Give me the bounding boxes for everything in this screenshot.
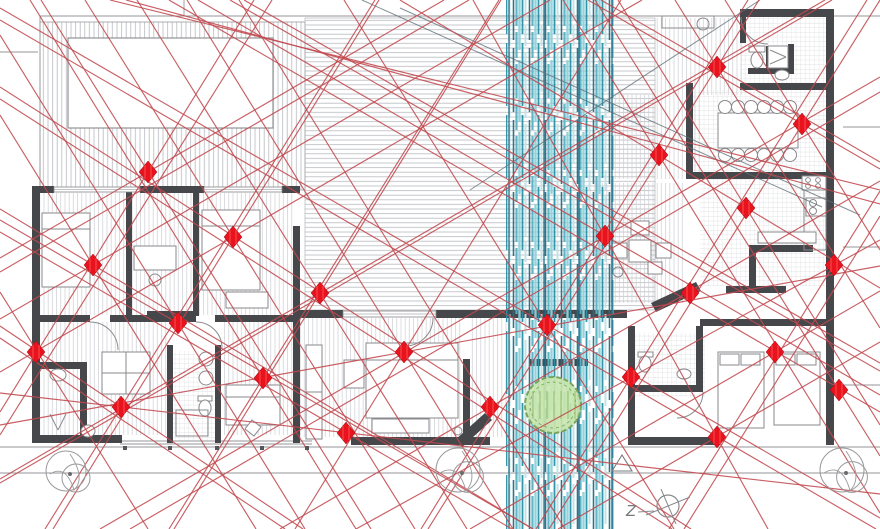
tree-icon xyxy=(820,448,864,492)
pool-skylight xyxy=(68,38,273,128)
wall xyxy=(32,186,40,443)
dresser-room-d xyxy=(226,385,280,425)
fence-post-dot xyxy=(215,446,219,450)
tree-trunk-dot xyxy=(460,471,464,475)
fence-post-dot xyxy=(168,446,172,450)
tree-branch xyxy=(50,454,79,490)
wall xyxy=(686,83,693,179)
wall xyxy=(32,315,90,322)
tree-trunk-dot xyxy=(68,472,72,476)
dining-chair xyxy=(719,101,732,114)
tree-icon xyxy=(46,451,86,491)
chair-sitting xyxy=(612,243,627,258)
toilet-top xyxy=(751,52,763,68)
floor-plan: Z xyxy=(0,0,880,529)
dining-chair xyxy=(745,101,758,114)
pillow xyxy=(720,354,739,365)
fence-post-dot xyxy=(260,446,264,450)
water-band xyxy=(506,0,614,529)
wall xyxy=(788,44,794,74)
north-arrow-tail xyxy=(638,511,654,512)
desk-room2 xyxy=(134,246,176,270)
fence-post-dot xyxy=(123,446,127,450)
toilet-mid xyxy=(199,400,211,416)
wall xyxy=(740,9,834,17)
basin-mid xyxy=(199,371,213,385)
nightstand-master xyxy=(344,360,364,388)
sink-top-bath xyxy=(775,70,789,80)
wall xyxy=(628,437,720,445)
fence-post-dot xyxy=(305,446,309,450)
tree-branch xyxy=(824,451,856,491)
floor-plan-drawing: Z xyxy=(0,0,880,529)
green-tree-layer xyxy=(525,377,581,433)
bench-master xyxy=(372,419,429,433)
wall xyxy=(696,326,703,392)
tree-trunk-dot xyxy=(844,471,848,475)
wall xyxy=(32,186,54,193)
north-label: Z xyxy=(625,502,637,520)
water-band-layer xyxy=(506,0,614,529)
pillow xyxy=(741,354,760,365)
north-arrow-axis xyxy=(661,489,676,524)
